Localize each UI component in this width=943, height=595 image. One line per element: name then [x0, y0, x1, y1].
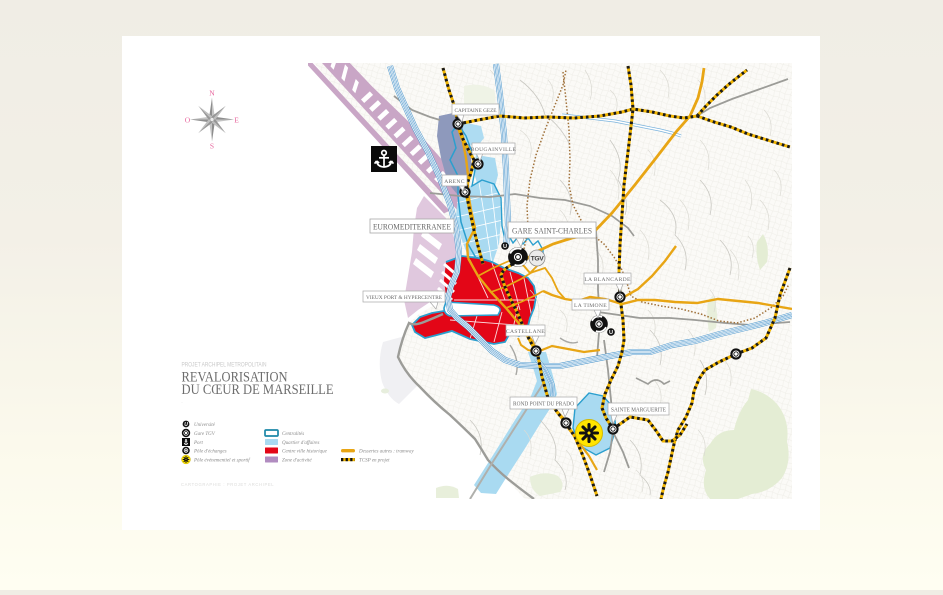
svg-text:LA TIMONE: LA TIMONE: [574, 303, 607, 309]
svg-text:CASTELLANE: CASTELLANE: [506, 329, 545, 335]
svg-text:..: ..: [181, 399, 183, 404]
svg-text:GARE SAINT-CHARLES: GARE SAINT-CHARLES: [512, 226, 592, 236]
svg-text:ARENC: ARENC: [444, 179, 464, 185]
svg-text:BOUGAINVILLE: BOUGAINVILLE: [471, 147, 517, 153]
svg-text:ROND POINT DU PRADO: ROND POINT DU PRADO: [513, 402, 574, 408]
svg-text:VIEUX PORT & HYPERCENTRE: VIEUX PORT & HYPERCENTRE: [366, 295, 443, 301]
svg-text:Pôle d'échanges: Pôle d'échanges: [193, 450, 227, 455]
svg-text:TGV: TGV: [531, 255, 545, 262]
svg-text:Gare TGV: Gare TGV: [194, 432, 216, 437]
svg-text:Université: Université: [194, 423, 216, 428]
svg-text:SAINTE MARGUERITE: SAINTE MARGUERITE: [611, 408, 666, 414]
svg-text:PROJET ARCHIPEL METROPOLITAIN: PROJET ARCHIPEL METROPOLITAIN: [182, 363, 267, 369]
svg-text:E: E: [234, 115, 239, 124]
svg-text:Zone d'activité: Zone d'activité: [282, 459, 312, 464]
svg-text:N: N: [209, 89, 215, 98]
svg-text:Dessertes autres : tramway: Dessertes autres : tramway: [358, 450, 414, 455]
svg-text:U: U: [503, 244, 507, 250]
svg-text:TCSP en projet: TCSP en projet: [359, 459, 390, 464]
svg-text:Centre ville historique: Centre ville historique: [282, 450, 328, 455]
svg-text:Centralités: Centralités: [282, 432, 304, 437]
svg-text:O: O: [185, 115, 191, 124]
svg-text:U: U: [184, 422, 188, 428]
svg-text:U: U: [609, 330, 613, 336]
svg-text:CARTOGRAPHIE : PROJET ARCHIPEL: CARTOGRAPHIE : PROJET ARCHIPEL: [181, 482, 274, 487]
svg-text:DU CŒUR DE MARSEILLE: DU CŒUR DE MARSEILLE: [182, 382, 334, 398]
svg-text:EUROMEDITERRANEE: EUROMEDITERRANEE: [373, 222, 451, 232]
svg-text:Pôle événementiel et sportif: Pôle événementiel et sportif: [193, 459, 250, 464]
svg-text:S: S: [210, 142, 214, 151]
svg-text:Quartier d'affaires: Quartier d'affaires: [282, 441, 319, 446]
svg-text:CAPITAINE GEZE: CAPITAINE GEZE: [455, 108, 498, 114]
svg-text:LA BLANCARDE: LA BLANCARDE: [584, 277, 631, 283]
svg-text:Port: Port: [193, 441, 204, 446]
